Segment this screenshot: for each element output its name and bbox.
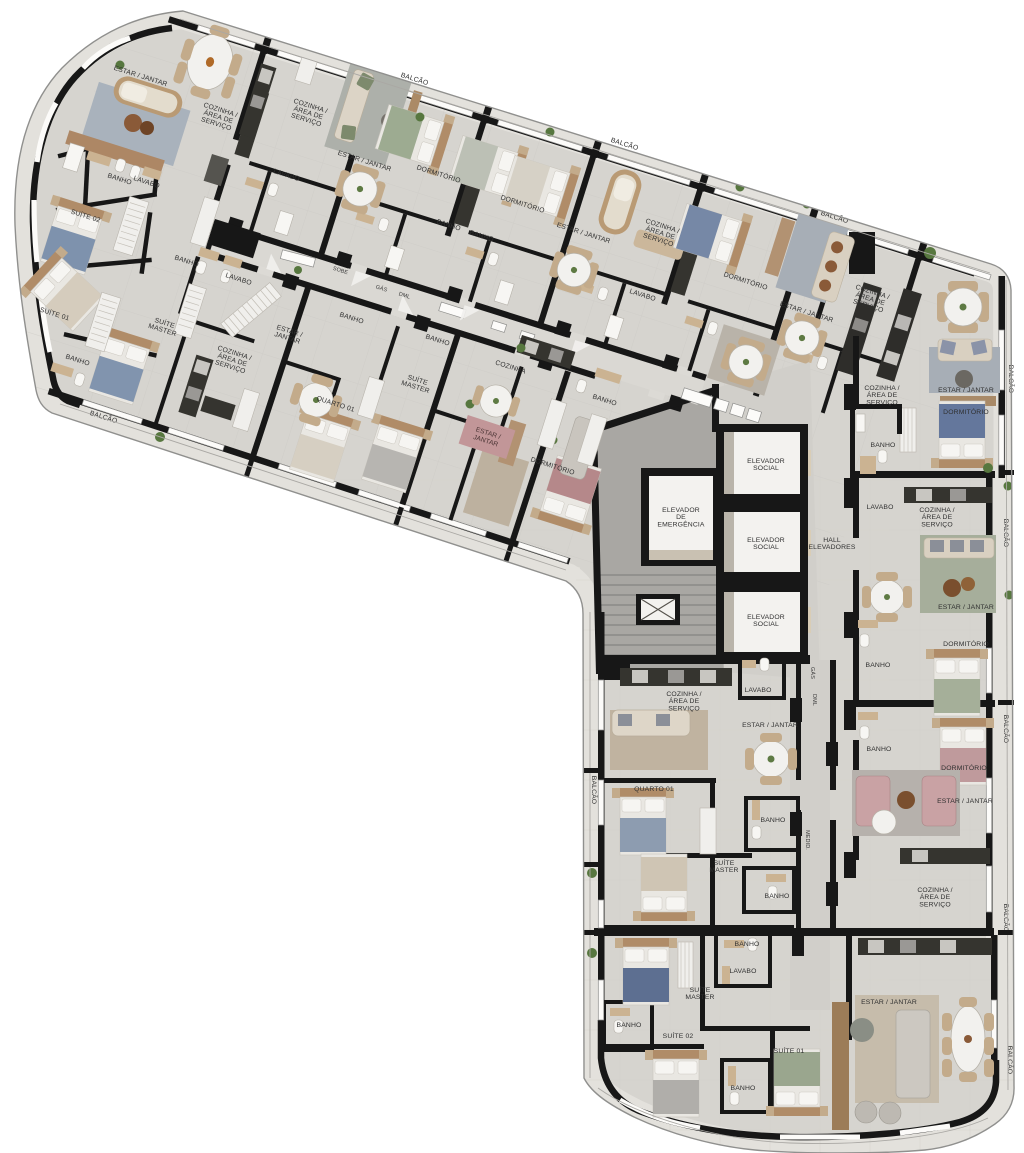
svg-text:SUÍTEMASTER: SUÍTEMASTER xyxy=(709,858,738,874)
svg-text:BANHO: BANHO xyxy=(617,1022,642,1029)
svg-text:COZINHA /ÁREA DESERVIÇO: COZINHA /ÁREA DESERVIÇO xyxy=(917,887,952,908)
svg-text:DORMITÓRIO: DORMITÓRIO xyxy=(943,407,989,416)
svg-text:BANHO: BANHO xyxy=(867,746,892,753)
svg-text:ESTAR / JANTAR: ESTAR / JANTAR xyxy=(861,999,917,1006)
svg-text:DORMITÓRIO: DORMITÓRIO xyxy=(943,639,989,648)
svg-text:BALCÃO: BALCÃO xyxy=(1002,904,1011,932)
svg-text:COZINHA /ÁREA DESERVIÇO: COZINHA /ÁREA DESERVIÇO xyxy=(864,385,899,406)
svg-text:LAVABO: LAVABO xyxy=(866,504,893,511)
svg-text:LAVABO: LAVABO xyxy=(744,687,771,694)
svg-text:ESTAR / JANTAR: ESTAR / JANTAR xyxy=(938,387,994,394)
svg-text:BANHO: BANHO xyxy=(765,893,790,900)
svg-text:BANHO: BANHO xyxy=(731,1085,756,1092)
svg-text:BANHO: BANHO xyxy=(871,442,896,449)
svg-text:LAVABO: LAVABO xyxy=(729,968,756,975)
svg-text:BANHO: BANHO xyxy=(761,817,786,824)
svg-text:COZINHA /ÁREA DESERVIÇO: COZINHA /ÁREA DESERVIÇO xyxy=(919,507,954,528)
svg-text:BANHO: BANHO xyxy=(866,662,891,669)
svg-text:DORMITÓRIO: DORMITÓRIO xyxy=(941,763,987,772)
svg-text:MEDID.: MEDID. xyxy=(804,830,810,850)
svg-text:ESTAR / JANTAR: ESTAR / JANTAR xyxy=(742,722,798,729)
svg-text:SUÍTEMASTER: SUÍTEMASTER xyxy=(685,985,714,1001)
svg-text:QUARTO 01: QUARTO 01 xyxy=(634,786,674,793)
svg-text:GÁS: GÁS xyxy=(809,667,816,679)
svg-text:ESTAR / JANTAR: ESTAR / JANTAR xyxy=(938,604,994,611)
svg-text:BANHO: BANHO xyxy=(735,941,760,948)
svg-text:COZINHA /ÁREA DESERVIÇO: COZINHA /ÁREA DESERVIÇO xyxy=(666,691,701,712)
svg-text:ESTAR / JANTAR: ESTAR / JANTAR xyxy=(937,798,993,805)
svg-text:SUÍTE 02: SUÍTE 02 xyxy=(663,1031,694,1040)
svg-text:DML: DML xyxy=(811,694,817,706)
svg-text:BALCÃO: BALCÃO xyxy=(590,776,599,804)
svg-text:BALCÃO: BALCÃO xyxy=(1002,715,1011,743)
svg-text:SUÍTE 01: SUÍTE 01 xyxy=(774,1046,805,1055)
